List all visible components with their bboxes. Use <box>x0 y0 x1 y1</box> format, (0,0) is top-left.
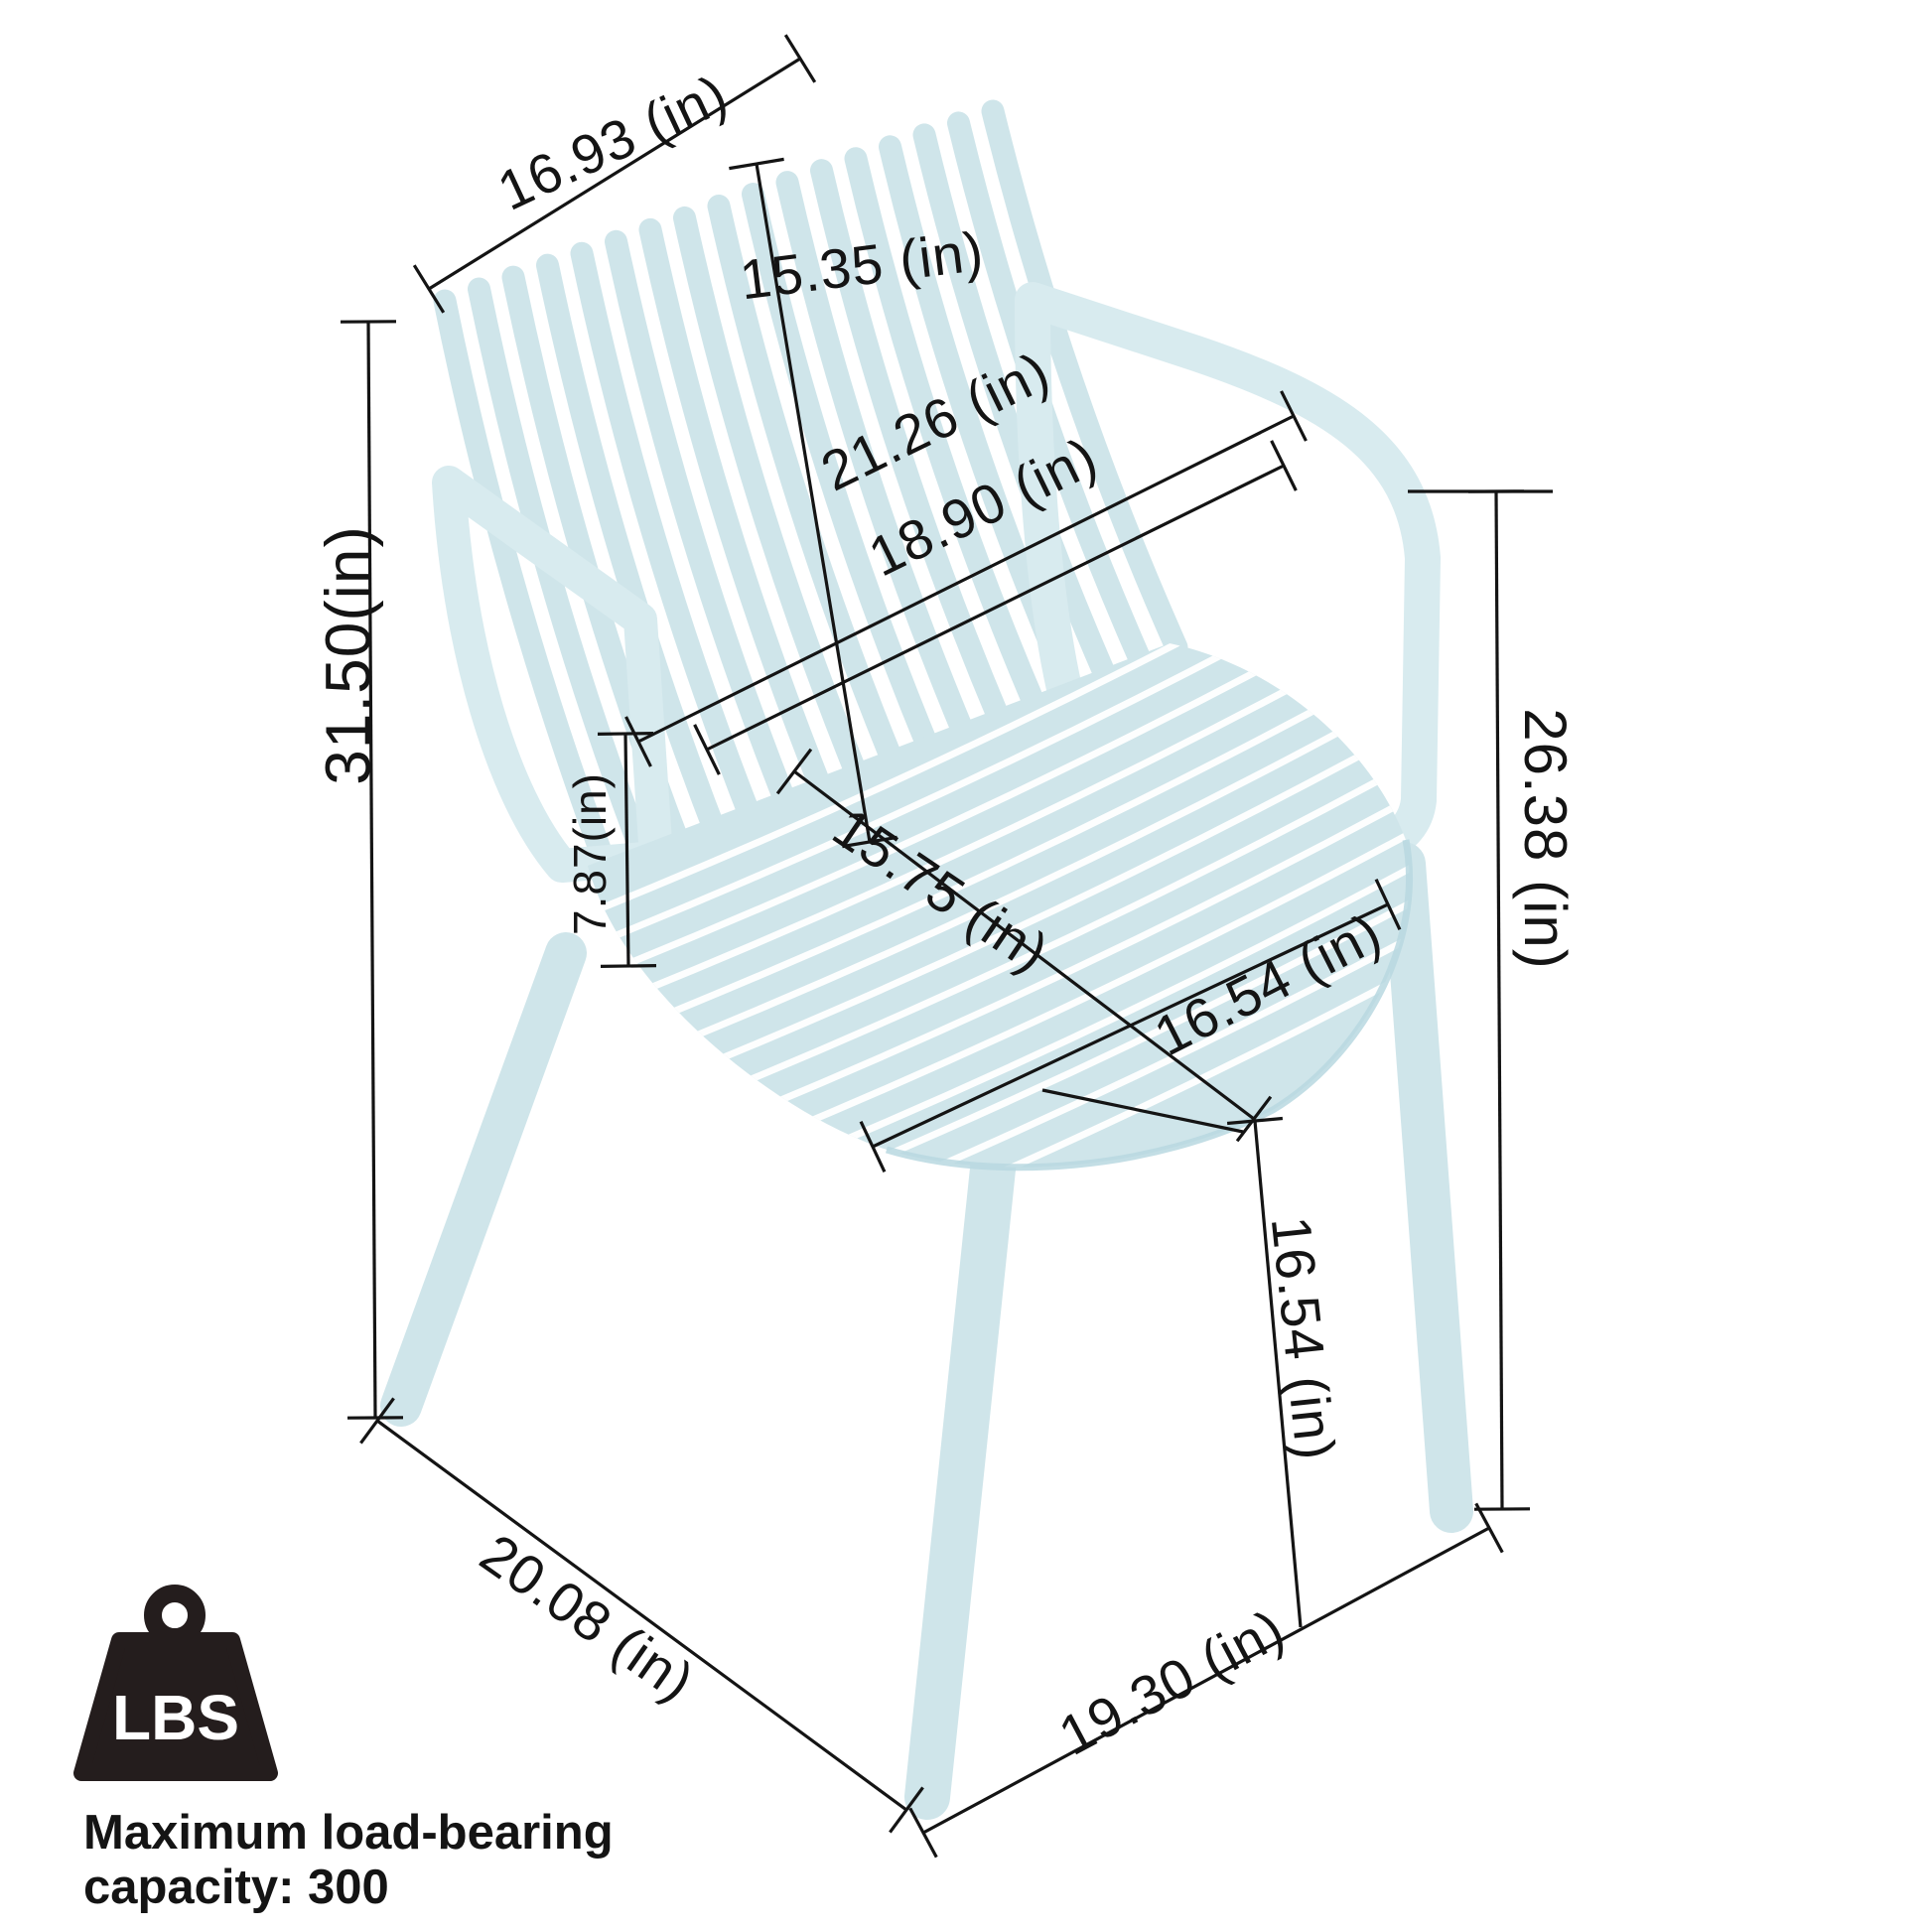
load-caption-line2: capacity: 300 <box>83 1861 389 1914</box>
dim-label-back-top-width: 16.93 (in) <box>488 62 737 221</box>
dim-tick <box>785 35 815 82</box>
dim-tick <box>414 265 444 313</box>
dim-line-armrest_floor_height <box>1496 491 1502 1509</box>
dim-tick <box>598 734 653 735</box>
load-capacity-badge: LBS Maximum load-bearing capacity: 300 <box>81 1593 614 1914</box>
dim-label-base-width: 19.30 (in) <box>1048 1596 1294 1766</box>
dim-tick <box>1272 441 1297 490</box>
dim-tick <box>1476 1503 1503 1552</box>
dim-label-seat-height: 16.54 (in) <box>1260 1213 1347 1463</box>
weight-unit-label: LBS <box>112 1682 239 1753</box>
dim-label-base-depth: 20.08 (in) <box>470 1522 706 1714</box>
dim-line-base_depth <box>377 1421 906 1810</box>
chair-leg <box>401 953 566 1406</box>
dim-label-armrest-above-seat: 7.87(in) <box>564 772 616 935</box>
dim-line-overall_height <box>368 322 375 1418</box>
load-caption-line1: Maximum load-bearing <box>83 1806 614 1860</box>
dim-label-overall-height: 31.50(in) <box>312 525 383 785</box>
dim-label-armrest-floor-height: 26.38 (in) <box>1512 708 1579 969</box>
dimension-diagram: 16.93 (in) 15.35 (in) 31.50(in) 7.87(in)… <box>0 0 1932 1932</box>
dim-tick <box>601 966 656 967</box>
chair-leg <box>1404 864 1451 1511</box>
chair-leg <box>927 1112 999 1797</box>
weight-handle-icon <box>153 1593 197 1637</box>
